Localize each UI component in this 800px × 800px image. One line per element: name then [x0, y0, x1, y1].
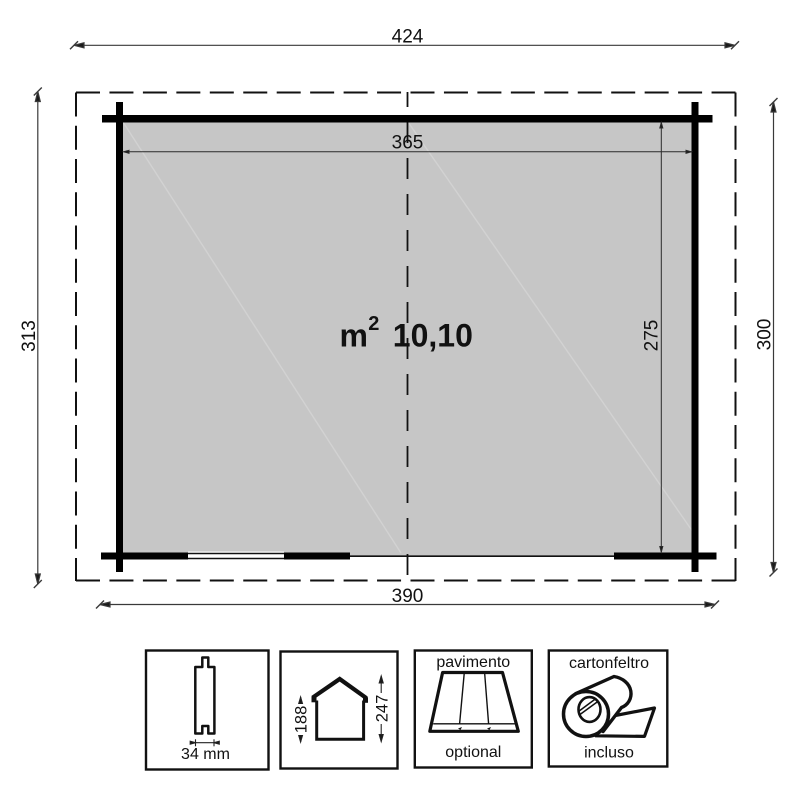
svg-text:275: 275 — [641, 320, 662, 352]
svg-text:34 mm: 34 mm — [181, 746, 230, 763]
svg-text:188: 188 — [293, 706, 311, 734]
svg-text:2: 2 — [368, 313, 379, 335]
svg-text:300: 300 — [755, 319, 776, 351]
svg-text:313: 313 — [19, 320, 40, 352]
svg-text:pavimento: pavimento — [436, 654, 510, 671]
svg-text:10,10: 10,10 — [393, 318, 473, 354]
svg-text:cartonfeltro: cartonfeltro — [569, 655, 649, 672]
svg-text:optional: optional — [445, 744, 501, 761]
svg-text:incluso: incluso — [584, 745, 634, 762]
svg-text:365: 365 — [392, 133, 424, 154]
svg-text:m: m — [340, 318, 368, 354]
svg-text:390: 390 — [392, 586, 424, 607]
svg-text:424: 424 — [392, 27, 424, 48]
svg-text:247: 247 — [373, 695, 391, 723]
